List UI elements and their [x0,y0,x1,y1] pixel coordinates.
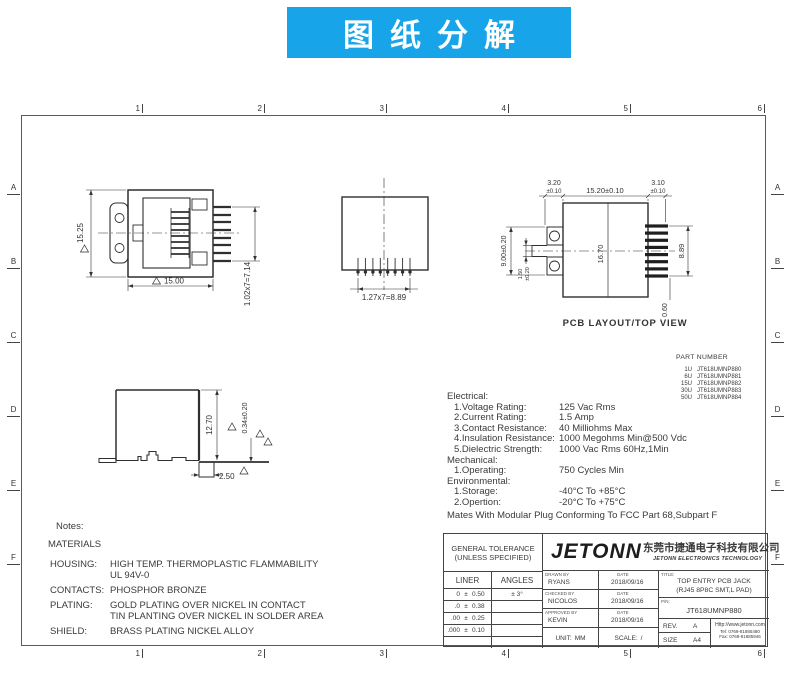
bottom-profile [116,452,199,461]
dim-9-00: 9.00±0.20 [501,235,508,266]
pin-pitch-view-drawing: 1.27x7=8.89 [330,172,480,307]
zone-col-label: 4 [490,104,509,113]
zone-row-label: A [7,183,20,195]
approved-by-cell: APPROVED BYKEVIN [543,609,599,628]
dim-3-10: 3.10 [651,180,665,187]
tolerance-header: GENERAL TOLERANCE (UNLESS SPECIFIED) [444,534,543,572]
website: Http://www.jetonn.com [711,622,769,628]
dimension-lines [350,278,418,293]
front-view-drawing: 15.25 15.00 1.02x7=7.14 [70,182,270,317]
dim-0-34: 0.34±0.20 [242,402,249,433]
revision-triangle-icon [228,423,272,474]
scale-cell: SCALE:/ [599,628,659,648]
zone-col-label: 1 [124,104,143,113]
fax: Fax: 0769-81885946 [711,634,769,639]
company-name-en: JETONN ELECTRONICS TECHNOLOGY [653,556,762,562]
connector-body [342,197,428,270]
dim-15-20: 15.20±0.10 [586,186,623,195]
unit-cell: UNIT:MM [543,628,599,648]
pcb-view-caption: PCB LAYOUT/TOP VIEW [563,318,688,329]
spec-footer: Mates With Modular Plug Conforming To FC… [447,511,769,522]
foot-pad [99,459,116,463]
title-block: GENERAL TOLERANCE (UNLESS SPECIFIED) LIN… [443,533,768,647]
zone-col-label: 6 [746,649,765,658]
materials-title: MATERIALS [48,539,101,550]
zone-row-label: D [7,405,20,417]
dim-8-89: 8.89 [677,244,686,259]
dim-2-50: 2.50 [219,472,235,481]
part-number-row: 1UJT618UMNP880 [676,367,776,374]
part-number-title: PART NUMBER [676,354,776,361]
solder-tab-box [199,462,214,477]
angles-header: ANGLES [492,572,543,589]
note-label: SHIELD: [50,626,87,637]
zone-row-label: C [7,331,20,343]
zone-row-label: B [7,257,20,269]
checked-by-cell: CHECKED BYNICOLOS [543,590,599,609]
zone-col-label: 3 [368,104,387,113]
drawn-date-cell: DATE2018/09/16 [599,571,659,590]
zone-row-label: D [771,405,784,417]
dim-0-60: 0.60 [662,303,669,317]
jetonn-logo: JETONN [551,540,642,564]
logo-row: JETONN 东莞市捷通电子科技有限公司 JETONN ELECTRONICS … [543,534,769,571]
zone-col-label: 2 [246,649,265,658]
pins [213,207,231,261]
zone-row-label: F [7,553,20,565]
zone-col-label: 1 [124,649,143,658]
angles-rows: ± 3° [492,589,543,648]
note-label: CONTACTS: [50,585,104,596]
approved-date-cell: DATE2018/09/16 [599,609,659,628]
spec-line: 5.Dielectric Strength:1000 Vac Rms 60Hz,… [447,445,769,456]
zone-col-label: 2 [246,104,265,113]
liner-rows: 0±0.50 .0±0.38 .00±0.25 .000±0.10 [444,589,492,648]
connector-body [563,203,648,297]
dim-15-00: 15.00 [164,277,185,286]
zone-row-label: E [7,479,20,491]
pn-cell: P/N: JT618UMNP880 [659,598,769,619]
dim-3-20: 3.20 [547,180,561,187]
drawn-by-cell: DRAWN BYRYANS [543,571,599,590]
side-profile-drawing: 12.70 0.34±0.20 2.50 [85,378,290,493]
dim-12-70: 12.70 [205,414,214,435]
zone-col-label: 6 [746,104,765,113]
dim-15-25: 15.25 [76,222,85,243]
dim-1-50-tol: ±0.20 [525,267,531,281]
note-label: HOUSING: [50,559,97,570]
banner: 图纸分解 [287,7,571,58]
specs-block: Electrical:1.Voltage Rating:125 Vac Rms2… [447,392,769,521]
part-number-row: 15UJT618UMNP882 [676,381,776,388]
revision-triangle-icon [81,245,161,284]
arrowheads [89,190,257,288]
company-name-cn: 东莞市捷通电子科技有限公司 [643,540,780,555]
zone-row-label: E [771,479,784,491]
zone-col-label: 5 [612,104,631,113]
notes-title: Notes: [56,521,83,532]
zone-col-label: 4 [490,649,509,658]
dim-8-89: 1.27x7=8.89 [362,293,407,302]
dim-1-50: 1.50 [518,269,524,280]
note-label: PLATING: [50,600,93,611]
rev-cell: REV. A [659,619,711,633]
title-cell: TITLE: TOP ENTRY PCB JACK(RJ45 8P8C SMT,… [659,571,769,598]
zone-col-label: 5 [612,649,631,658]
contact-cell: Http://www.jetonn.com Tel: 0769-81885480… [711,619,769,648]
banner-title: 图纸分解 [327,10,531,55]
part-number-row: 6UJT618UMNP881 [676,374,776,381]
checked-date-cell: DATE2018/09/16 [599,590,659,609]
spec-line: 2.Opertion:-20°C To +75°C [447,498,769,509]
size-cell: SIZE A4 [659,633,711,648]
pcb-layout-view-drawing: 3.20 ±0.10 15.20±0.10 3.10 ±0.10 9.00±0.… [495,168,780,340]
dim-16-70: 16.70 [596,245,605,264]
connector-body [128,190,213,277]
liner-header: LINER [444,572,492,589]
drawing-sheet: 图纸分解 112233445566AABBCCDDEEFF [0,0,790,699]
dim-3-20-tol: ±0.10 [547,189,563,195]
dim-7-14: 1.02x7=7.14 [243,261,252,306]
zone-col-label: 3 [368,649,387,658]
dim-3-10-tol: ±0.10 [651,189,667,195]
